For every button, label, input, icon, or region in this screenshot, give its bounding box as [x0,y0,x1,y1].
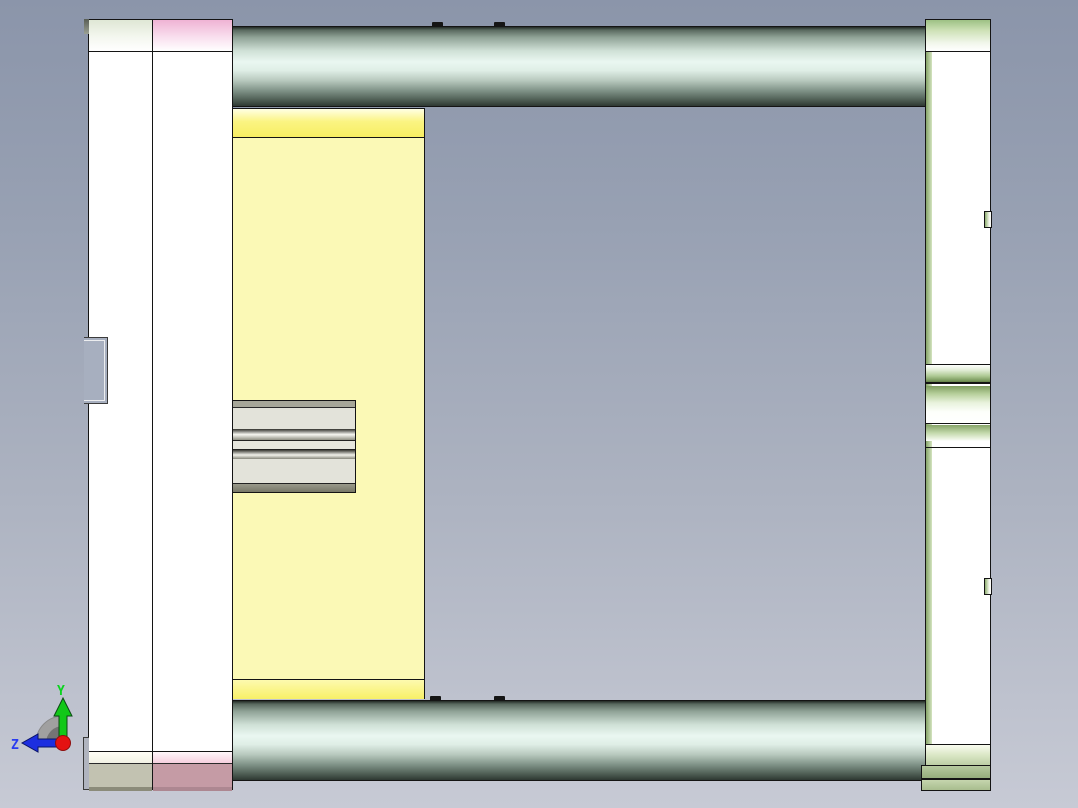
bottom-cylinder-mark-1 [430,696,441,701]
y-axis-label: Y [57,684,65,699]
left-plate-inner-top-pink-face[interactable] [153,20,232,52]
right-plate-foot-lower[interactable] [921,779,991,791]
insert-layer-2 [233,408,355,429]
insert-layer-6 [233,459,355,483]
axis-triad[interactable]: Y Z [8,678,108,793]
right-plate-pin-tab-lower[interactable] [984,578,992,595]
origin-dot [56,736,71,751]
left-plate-outer[interactable] [88,19,153,790]
left-plate-inner[interactable] [152,19,233,790]
right-plate-bushing-upper[interactable] [926,364,990,384]
right-plate-top-green-face[interactable] [926,20,990,52]
top-guide-cylinder[interactable] [232,26,926,107]
right-plate-foot-upper[interactable] [921,765,991,779]
bottom-cylinder-mark-2 [494,696,505,701]
right-plate-bushing-small[interactable] [926,425,990,441]
cavity-block-top-strip [233,109,424,138]
cad-viewport[interactable]: Y Z [0,0,1078,808]
right-plate-parting-line [926,447,990,448]
insert-layer-3 [233,429,355,440]
top-cylinder-mark-1 [432,22,443,27]
right-plate-pin-tab-upper[interactable] [984,211,992,228]
left-plate-inner-bottom-mauve-block[interactable] [153,763,232,787]
insert-layer-1 [233,401,355,408]
z-axis-label: Z [11,738,19,753]
left-plate-top-chamfer [84,19,89,34]
insert-layer-5 [233,450,355,459]
bottom-guide-cylinder[interactable] [232,700,926,781]
insert-layer-4 [233,440,355,451]
right-plate-bushing-lower[interactable] [926,386,990,424]
insert-layer-7 [233,483,355,492]
right-plate[interactable] [925,19,991,790]
cavity-block-bottom-strip [233,679,424,699]
left-plate-inner-bottom-light-strip [153,751,232,763]
mounting-notch-highlight [84,340,105,401]
right-plate-bottom-green-block[interactable] [926,744,990,766]
top-cylinder-mark-2 [494,22,505,27]
left-plate-outer-top-face[interactable] [89,20,152,52]
laminated-insert[interactable] [232,400,356,493]
left-plate-inner-bottom-edge [153,787,232,791]
left-plate-mounting-notch[interactable] [84,337,108,404]
